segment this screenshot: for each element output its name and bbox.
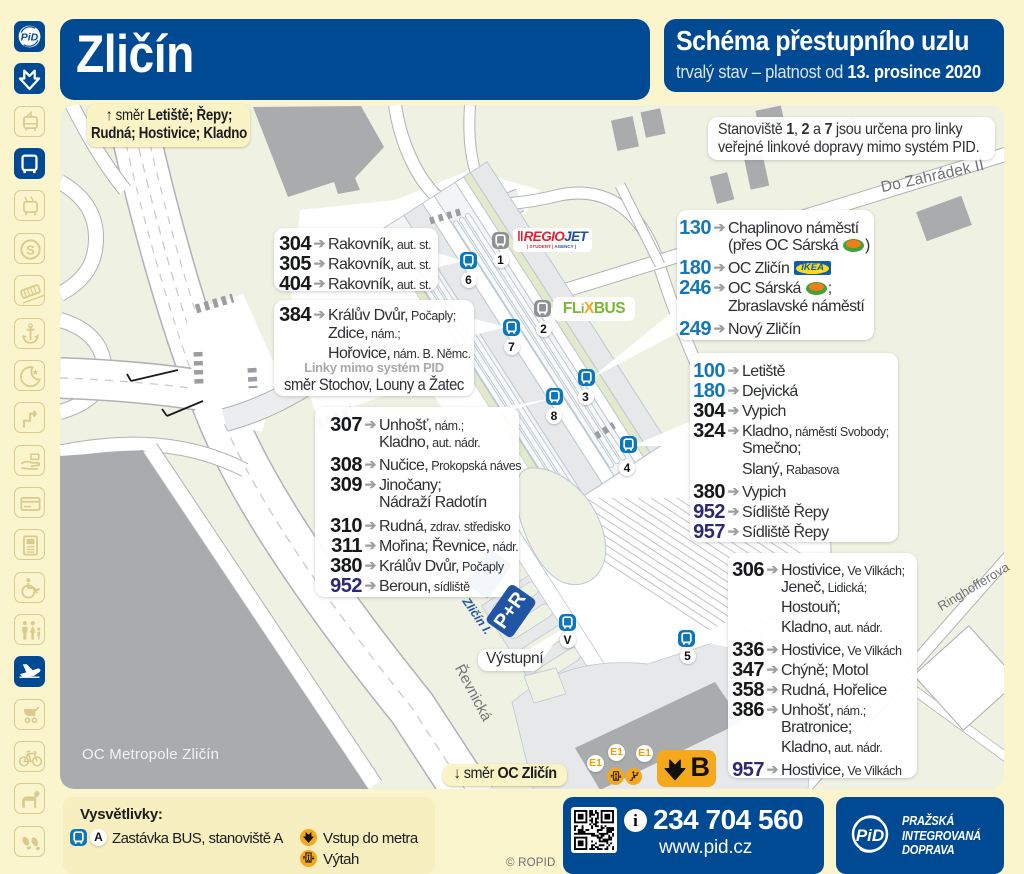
svg-text:PiD: PiD: [856, 826, 884, 845]
